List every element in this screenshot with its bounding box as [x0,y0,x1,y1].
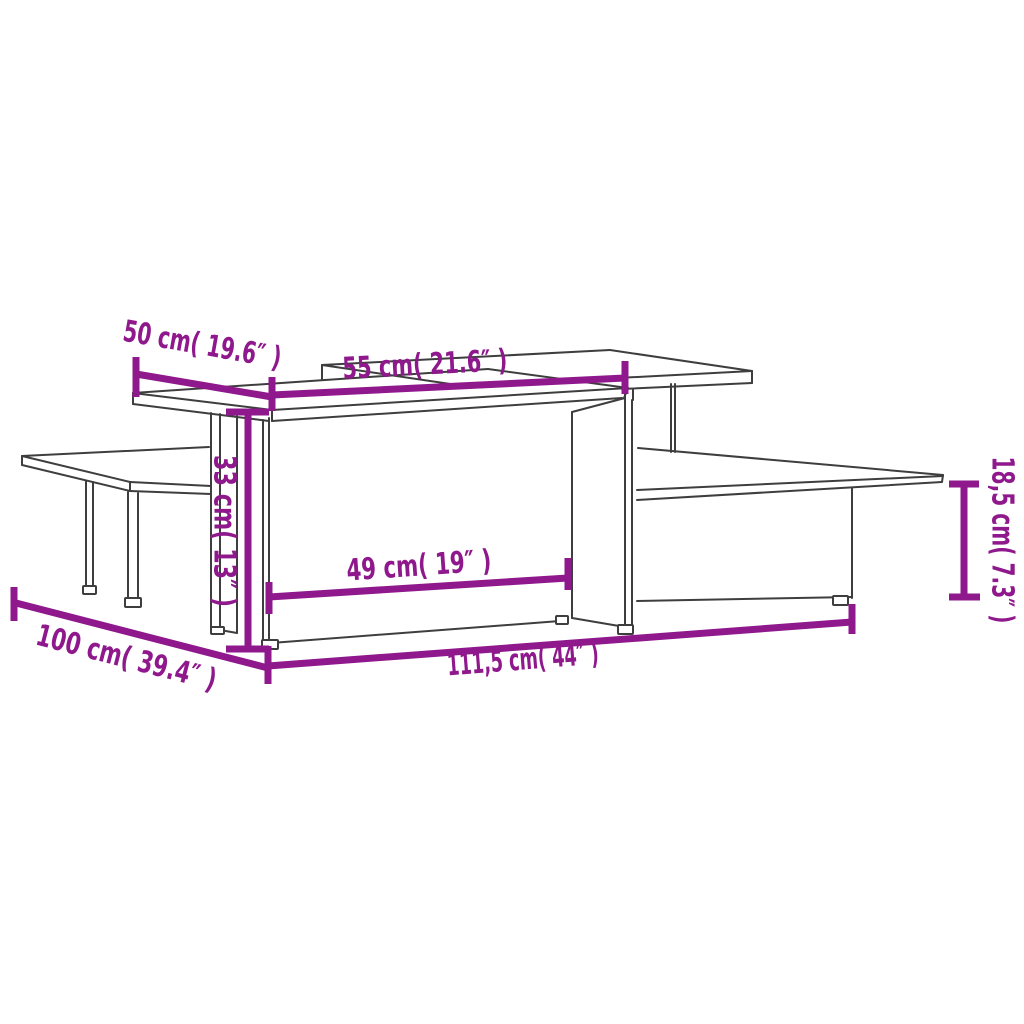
furniture-foot-5 [618,625,633,634]
dimension-height-right-shelf: 18,5 cm( 7.3″ ) [949,457,1020,624]
furniture-edge-29 [271,621,560,643]
furniture-edge-35 [22,447,209,456]
dimension-label-top-depth-left: 50 cm( 19.6″ ) [120,314,284,376]
dimension-label-total-length: 111,5 cm( 44″ ) [446,637,600,684]
furniture-edge-47 [637,476,943,490]
furniture-edge-14 [622,383,752,389]
product-dimension-diagram: 50 cm( 19.6″ )55 cm( 21.6″ )33 cm( 13″ )… [0,0,1024,1024]
furniture-edge-46 [638,448,943,475]
furniture-foot-1 [125,598,141,607]
furniture-feet [83,586,848,649]
furniture-edge-7 [272,398,622,421]
furniture-foot-6 [833,596,848,605]
furniture-foot-2 [211,627,224,634]
dimension-inner-width: 49 cm( 19″ ) [269,543,568,614]
dimension-label-top-depth-right: 55 cm( 21.6″ ) [342,343,509,387]
furniture-edge-51 [637,597,852,601]
furniture-outline [22,350,943,644]
furniture-edge-37 [130,482,211,486]
dimension-diagram-svg: 50 cm( 19.6″ )55 cm( 21.6″ )33 cm( 13″ )… [0,0,1024,1024]
furniture-edge-10 [610,350,752,371]
furniture-foot-0 [83,586,96,594]
furniture-edge-49 [637,482,942,500]
furniture-edge-40 [130,491,211,494]
dimension-label-height-left: 33 cm( 13″ ) [207,455,242,607]
dimension-label-height-right-shelf: 18,5 cm( 7.3″ ) [985,457,1020,624]
furniture-edge-48 [942,475,943,482]
dimension-top-depth-left: 50 cm( 19.6″ ) [120,314,284,411]
furniture-foot-4 [556,616,568,624]
